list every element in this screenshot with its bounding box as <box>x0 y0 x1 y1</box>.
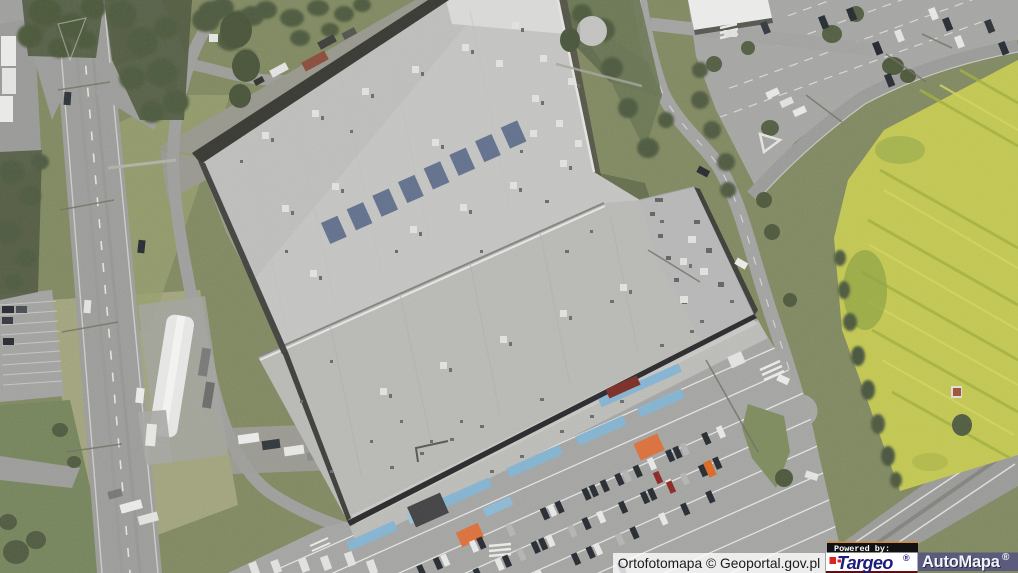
svg-text:Ortofotomapa © Geoportal.gov.p: Ortofotomapa © Geoportal.gov.pl <box>618 556 820 571</box>
svg-text:AutoMapa: AutoMapa <box>922 553 1001 571</box>
svg-text:Targeo: Targeo <box>837 553 893 573</box>
svg-text:®: ® <box>903 553 910 563</box>
svg-text:®: ® <box>1002 552 1010 563</box>
